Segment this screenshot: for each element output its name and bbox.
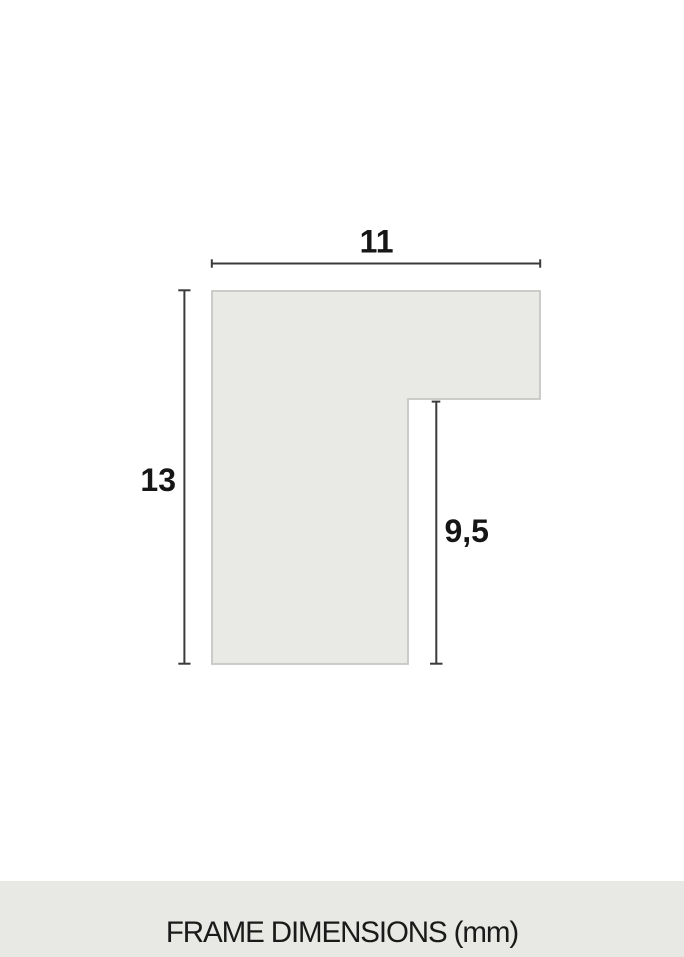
svg-text:11: 11	[360, 224, 394, 260]
svg-text:9,5: 9,5	[444, 513, 488, 549]
svg-text:FRAME DIMENSIONS (mm): FRAME DIMENSIONS (mm)	[166, 916, 518, 949]
svg-text:13: 13	[140, 462, 176, 498]
